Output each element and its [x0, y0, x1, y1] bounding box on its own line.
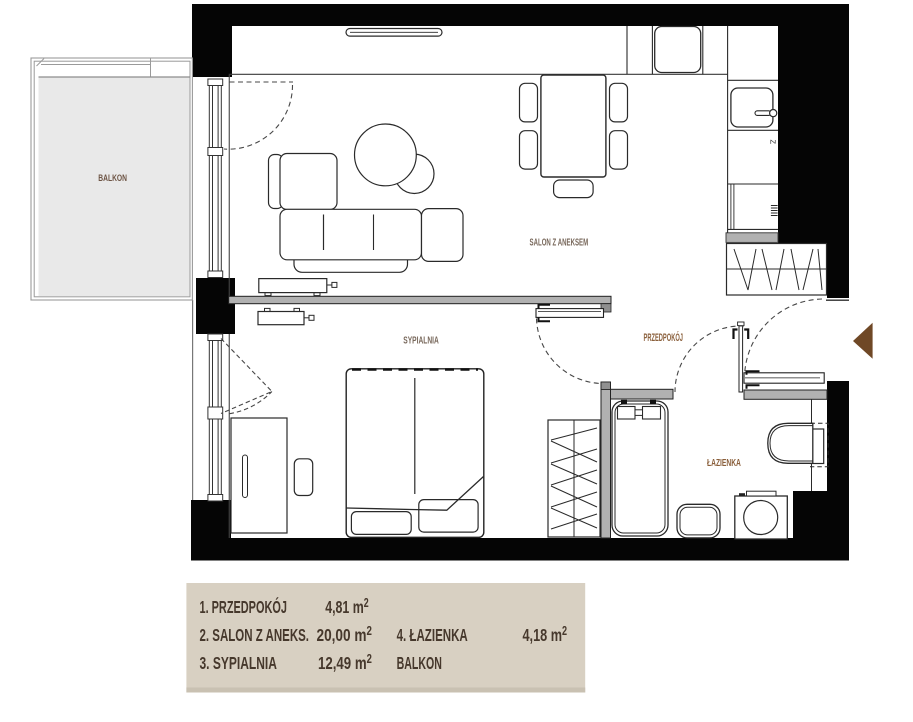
- svg-text:3. SYPIALNIA: 3. SYPIALNIA: [200, 654, 278, 674]
- svg-text:PRZEDPOKÓJ: PRZEDPOKÓJ: [644, 330, 684, 344]
- svg-text:BALKON: BALKON: [98, 173, 127, 183]
- svg-text:Z: Z: [769, 140, 778, 145]
- svg-text:1. PRZEDPOKÓJ: 1. PRZEDPOKÓJ: [200, 596, 287, 618]
- svg-text:12,49 m2: 12,49 m2: [318, 653, 372, 674]
- svg-text:4. ŁAZIENKA: 4. ŁAZIENKA: [397, 627, 468, 646]
- svg-text:20,00 m2: 20,00 m2: [317, 625, 372, 646]
- svg-text:SALON Z ANEKSEM: SALON Z ANEKSEM: [530, 236, 589, 248]
- svg-text:4,81 m2: 4,81 m2: [325, 597, 368, 618]
- svg-text:2. SALON Z ANEKS.: 2. SALON Z ANEKS.: [200, 627, 309, 646]
- svg-text:SYPIALNIA: SYPIALNIA: [403, 334, 439, 346]
- svg-text:BALKON: BALKON: [397, 654, 442, 673]
- svg-text:4,18 m2: 4,18 m2: [523, 625, 568, 646]
- svg-text:ŁAZIENKA: ŁAZIENKA: [707, 456, 741, 468]
